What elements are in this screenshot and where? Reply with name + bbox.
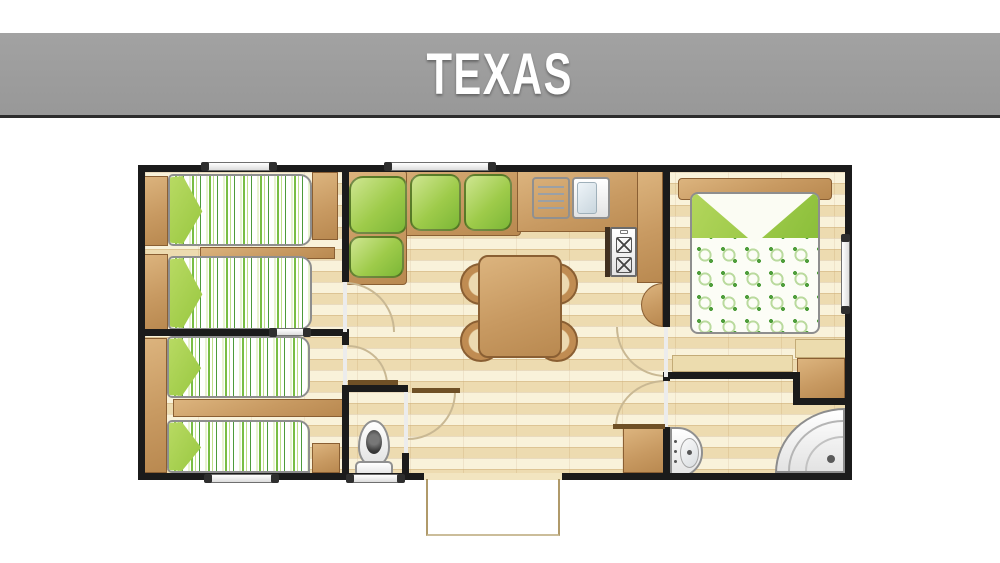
door-leaf-wc xyxy=(412,388,460,393)
hob-knob-panel xyxy=(620,230,628,234)
two-burner-hob xyxy=(610,227,637,277)
title-banner: TEXAS xyxy=(0,33,1000,118)
opening-bedroom1 xyxy=(343,282,347,332)
washbasin-drain xyxy=(687,450,692,455)
washbasin-tap-dot-1 xyxy=(674,440,677,443)
hall-cabinet xyxy=(623,428,665,473)
bedroom2-single-bed-4 xyxy=(167,420,310,473)
entrance-porch xyxy=(426,479,560,536)
master-desk-shelf xyxy=(672,355,793,372)
door-leaf-bedroom2 xyxy=(348,380,398,385)
sofa-cushion-2 xyxy=(410,174,461,231)
sofa-cushion-4 xyxy=(349,236,404,278)
sink-bowl xyxy=(577,182,597,214)
window-right-master xyxy=(841,235,850,313)
bed1-pillow xyxy=(170,176,229,244)
window-top-living xyxy=(385,162,495,171)
kitchen-counter-side xyxy=(637,170,663,283)
master-double-bed xyxy=(690,192,820,334)
bedroom1-wardrobe-right xyxy=(312,172,338,240)
kitchen-sink xyxy=(572,177,610,219)
wall-bedrooms-lower xyxy=(342,385,349,480)
toilet-bowl xyxy=(358,420,390,466)
floor-plan xyxy=(138,165,852,480)
opening-wc xyxy=(404,392,408,453)
hob-burner-2 xyxy=(616,257,632,273)
wall-outer-bottom-right xyxy=(562,473,852,480)
bed4-pillow xyxy=(169,422,227,471)
wall-wc-top xyxy=(342,385,408,392)
wall-bathroom-top xyxy=(663,372,800,379)
sofa-cushion-3 xyxy=(464,174,512,231)
bedroom1-single-bed-2 xyxy=(168,256,312,330)
page-title: TEXAS xyxy=(427,41,573,108)
wall-bedroom-divider xyxy=(138,329,349,336)
page: TEXAS xyxy=(0,0,1000,563)
wall-outer-right xyxy=(845,165,852,480)
sofa-corner-cushion xyxy=(349,176,407,234)
shower-drain xyxy=(827,455,835,463)
master-corner-shelf xyxy=(795,339,851,358)
window-bedroom-divider xyxy=(270,328,310,336)
washbasin-tap-dot-3 xyxy=(674,460,677,463)
dining-table xyxy=(478,255,562,358)
washbasin-tap-dot-2 xyxy=(674,450,677,453)
bed3-pillow xyxy=(169,338,227,396)
door-leaf-shower-room xyxy=(613,424,665,429)
window-top-bedroom1 xyxy=(202,162,276,171)
wall-master-lower xyxy=(663,427,670,480)
hob-burner-1 xyxy=(616,237,632,253)
window-bottom-bedroom2 xyxy=(205,474,278,483)
wall-bathroom-top-right xyxy=(793,398,852,405)
bedroom2-bedside-cabinet xyxy=(312,443,340,473)
window-bottom-wc xyxy=(347,474,404,483)
bed2-pillow xyxy=(170,258,229,328)
master-wardrobe xyxy=(797,358,845,399)
wall-outer-left xyxy=(138,165,145,480)
toilet-bowl-opening xyxy=(366,430,382,454)
wall-master-upper xyxy=(663,165,670,327)
opening-shower-room xyxy=(664,381,668,427)
opening-bedroom2 xyxy=(343,345,347,385)
bedroom1-single-bed-1 xyxy=(168,174,312,246)
bedroom2-shelf xyxy=(173,399,343,417)
opening-master-bedroom xyxy=(664,327,668,377)
bedroom2-single-bed-3 xyxy=(167,336,310,398)
wall-bedrooms-upper xyxy=(342,165,349,282)
kitchen-draining-board xyxy=(532,177,570,219)
